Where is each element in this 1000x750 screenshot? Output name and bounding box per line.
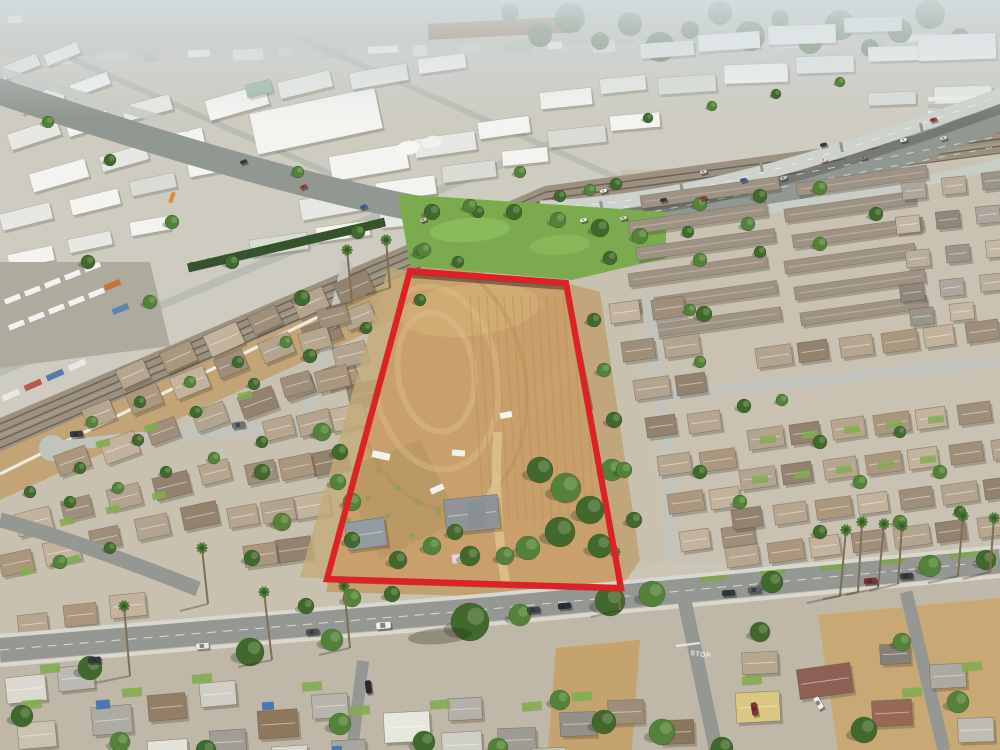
warm-light-overlay [0, 0, 1000, 750]
aerial-scene: STOP [0, 0, 1000, 750]
aerial-photo: STOP [0, 0, 1000, 750]
